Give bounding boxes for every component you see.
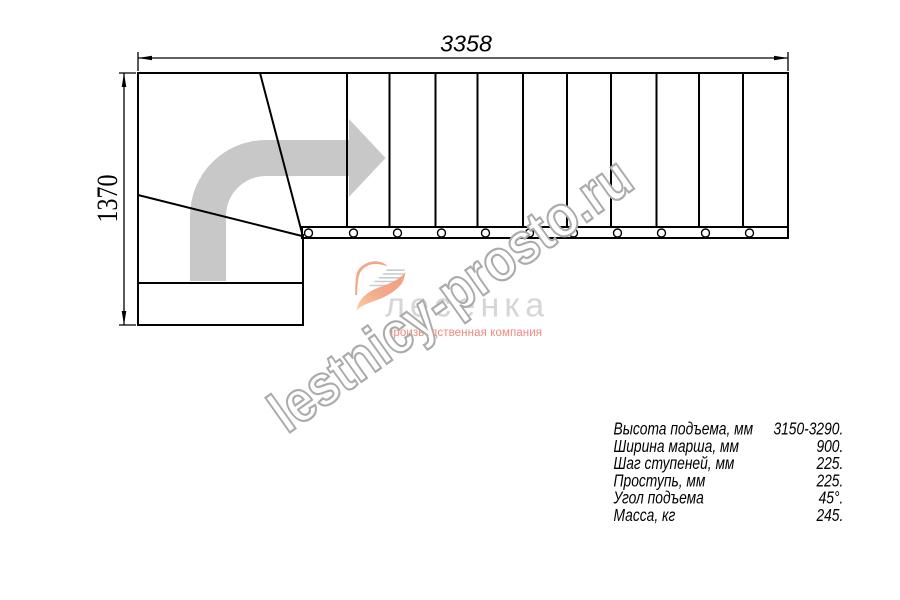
svg-text:Шаг ступеней, мм: Шаг ступеней, мм — [614, 455, 735, 474]
svg-text:Масса, кг: Масса, кг — [614, 506, 676, 525]
svg-text:900.: 900. — [816, 437, 843, 456]
svg-text:225.: 225. — [816, 472, 844, 491]
svg-text:Высота подъема, мм: Высота подъема, мм — [614, 420, 754, 439]
svg-text:3150-3290.: 3150-3290. — [773, 420, 843, 439]
svg-text:Угол подъема: Угол подъема — [613, 489, 704, 508]
svg-text:245.: 245. — [816, 506, 844, 525]
svg-text:225.: 225. — [816, 455, 844, 474]
svg-text:3358: 3358 — [440, 31, 492, 57]
svg-text:Ширина марша, мм: Ширина марша, мм — [614, 437, 740, 456]
svg-text:45°.: 45°. — [819, 489, 844, 508]
svg-text:1370: 1370 — [90, 175, 123, 223]
svg-text:Проступь, мм: Проступь, мм — [614, 472, 706, 491]
